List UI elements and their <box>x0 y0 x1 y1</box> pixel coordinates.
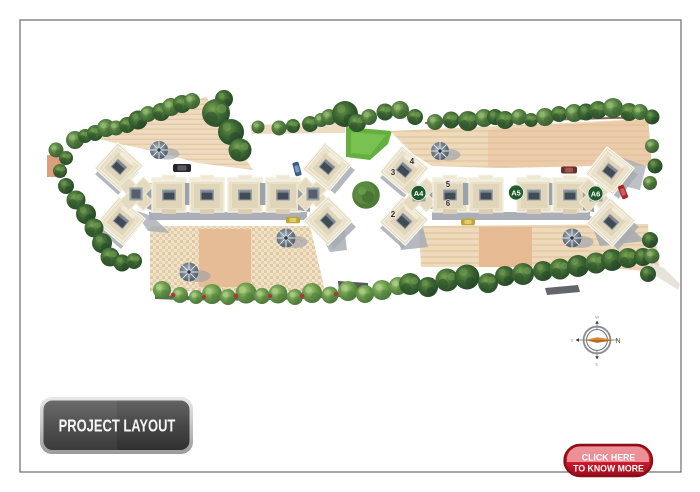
svg-text:4: 4 <box>410 157 415 166</box>
svg-text:S: S <box>571 338 574 343</box>
svg-text:N: N <box>616 338 621 345</box>
svg-text:A6: A6 <box>591 190 601 199</box>
svg-text:A4: A4 <box>414 189 424 198</box>
svg-text:2: 2 <box>391 210 396 219</box>
svg-text:A5: A5 <box>511 189 521 198</box>
svg-text:W: W <box>595 315 599 320</box>
svg-text:3: 3 <box>391 168 396 177</box>
svg-text:6: 6 <box>446 199 451 208</box>
svg-text:5: 5 <box>446 180 451 189</box>
svg-text:PROJECT LAYOUT: PROJECT LAYOUT <box>59 417 176 436</box>
svg-text:TO KNOW MORE: TO KNOW MORE <box>573 463 644 473</box>
svg-text:CLICK HERE: CLICK HERE <box>582 452 635 462</box>
svg-text:E: E <box>596 362 599 367</box>
